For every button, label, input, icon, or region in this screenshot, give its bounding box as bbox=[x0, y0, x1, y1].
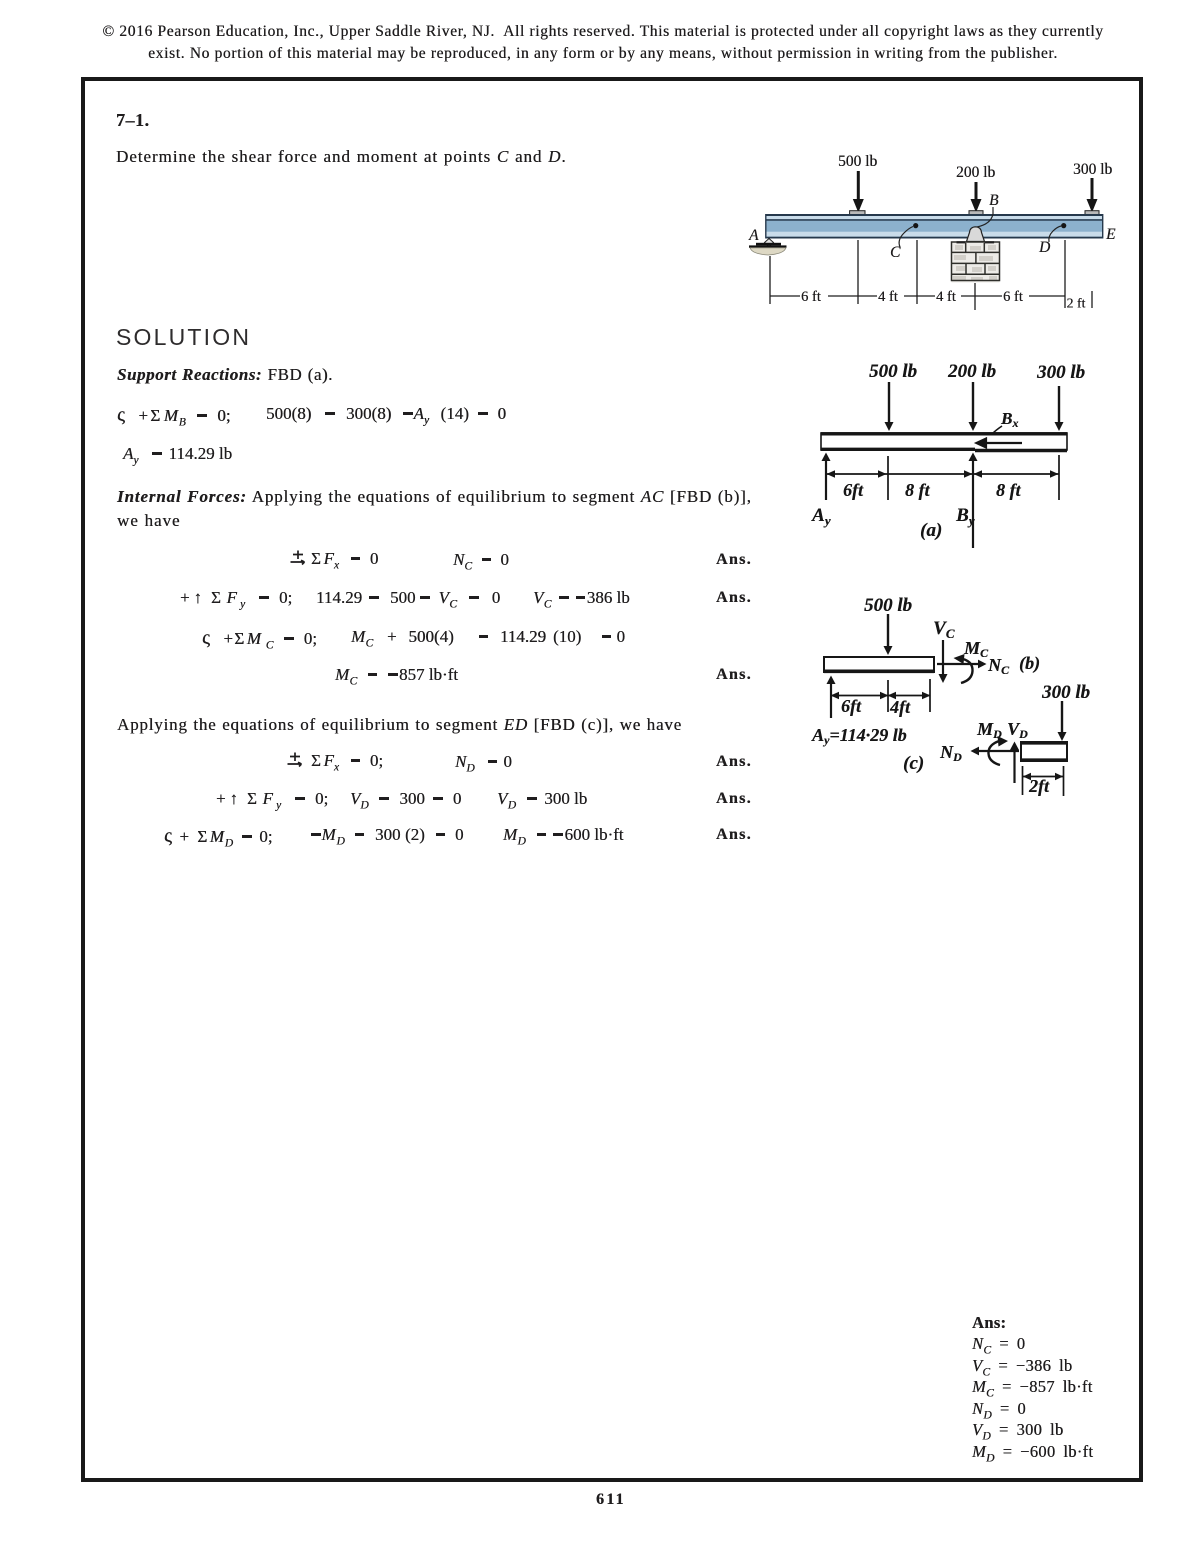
svg-text:(a): (a) bbox=[920, 520, 942, 541]
svg-text:B: B bbox=[989, 192, 999, 209]
svg-text:8 ft: 8 ft bbox=[996, 480, 1021, 500]
svg-text:500 lb: 500 lb bbox=[869, 361, 917, 382]
svg-text:6ft: 6ft bbox=[841, 696, 862, 716]
svg-text:By: By bbox=[955, 505, 975, 528]
svg-text:4 ft: 4 ft bbox=[936, 289, 956, 305]
svg-text:E: E bbox=[1105, 226, 1116, 243]
svg-text:200 lb: 200 lb bbox=[947, 361, 996, 382]
svg-text:Ay=114·29 lb: Ay=114·29 lb bbox=[811, 725, 907, 747]
svg-text:Bx: Bx bbox=[1000, 409, 1018, 430]
svg-text:500 lb: 500 lb bbox=[838, 153, 877, 170]
svg-text:VC: VC bbox=[933, 618, 955, 641]
svg-text:A: A bbox=[748, 227, 759, 244]
svg-text:2 ft: 2 ft bbox=[1067, 296, 1086, 311]
svg-text:ND: ND bbox=[939, 742, 962, 764]
svg-text:NC: NC bbox=[987, 655, 1010, 677]
svg-text:(b): (b) bbox=[1019, 653, 1040, 674]
svg-text:VD: VD bbox=[1007, 719, 1028, 741]
svg-text:4 ft: 4 ft bbox=[878, 289, 898, 305]
svg-text:300 lb: 300 lb bbox=[1073, 161, 1112, 178]
svg-text:6 ft: 6 ft bbox=[801, 289, 821, 305]
svg-text:500 lb: 500 lb bbox=[864, 595, 912, 616]
svg-text:300 lb: 300 lb bbox=[1041, 682, 1090, 703]
svg-text:MC: MC bbox=[963, 638, 989, 660]
svg-text:6 ft: 6 ft bbox=[1003, 289, 1023, 305]
svg-text:6ft: 6ft bbox=[843, 480, 864, 500]
svg-text:200 lb: 200 lb bbox=[956, 164, 995, 181]
svg-text:Ay: Ay bbox=[811, 505, 831, 528]
svg-text:300 lb: 300 lb bbox=[1036, 362, 1085, 383]
svg-text:(c): (c) bbox=[903, 753, 924, 774]
svg-text:8 ft: 8 ft bbox=[905, 480, 930, 500]
svg-text:4ft: 4ft bbox=[889, 697, 911, 717]
svg-text:2ft: 2ft bbox=[1028, 776, 1050, 796]
